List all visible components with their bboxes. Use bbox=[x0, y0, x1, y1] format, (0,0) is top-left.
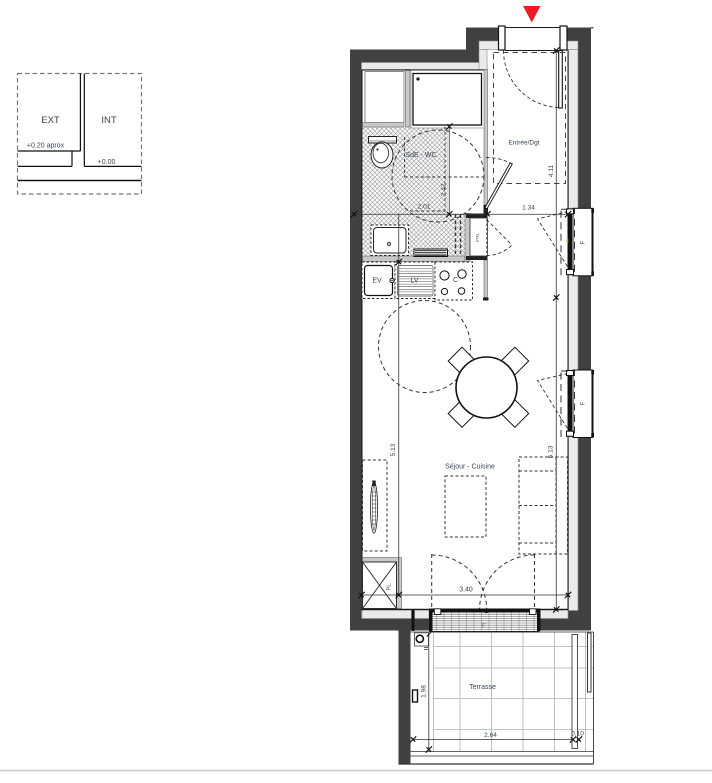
svg-text:+0.20 aprox: +0.20 aprox bbox=[27, 143, 65, 150]
svg-text:F: F bbox=[581, 240, 587, 244]
svg-text:0.10: 0.10 bbox=[571, 731, 584, 738]
svg-text:1.98: 1.98 bbox=[421, 685, 428, 698]
svg-text:Séjour - Cuisine: Séjour - Cuisine bbox=[445, 464, 495, 471]
svg-text:2.01: 2.01 bbox=[418, 204, 431, 211]
svg-text:Entrée/Dgt: Entrée/Dgt bbox=[508, 140, 539, 147]
svg-text:LV: LV bbox=[410, 278, 418, 285]
svg-text:PL: PL bbox=[387, 584, 393, 591]
svg-text:3.40: 3.40 bbox=[459, 587, 473, 594]
svg-text:EXT: EXT bbox=[41, 115, 60, 126]
svg-text:INT: INT bbox=[101, 115, 117, 126]
svg-text:1.34: 1.34 bbox=[522, 205, 535, 212]
svg-text:2.64: 2.64 bbox=[484, 732, 497, 739]
svg-text:C: C bbox=[453, 277, 458, 284]
svg-text:ETEL: ETEL bbox=[476, 233, 480, 242]
svg-text:4.11: 4.11 bbox=[548, 165, 555, 178]
svg-text:5.13: 5.13 bbox=[548, 445, 555, 458]
svg-text:+0.00: +0.00 bbox=[98, 159, 116, 166]
svg-text:2.42: 2.42 bbox=[441, 183, 448, 196]
svg-text:SdE - WC: SdE - WC bbox=[405, 152, 436, 159]
svg-text:EV: EV bbox=[372, 278, 382, 285]
svg-text:F: F bbox=[482, 623, 486, 630]
svg-text:5.13: 5.13 bbox=[390, 443, 397, 456]
svg-text:F: F bbox=[581, 401, 587, 405]
svg-text:Terrasse: Terrasse bbox=[469, 684, 496, 691]
